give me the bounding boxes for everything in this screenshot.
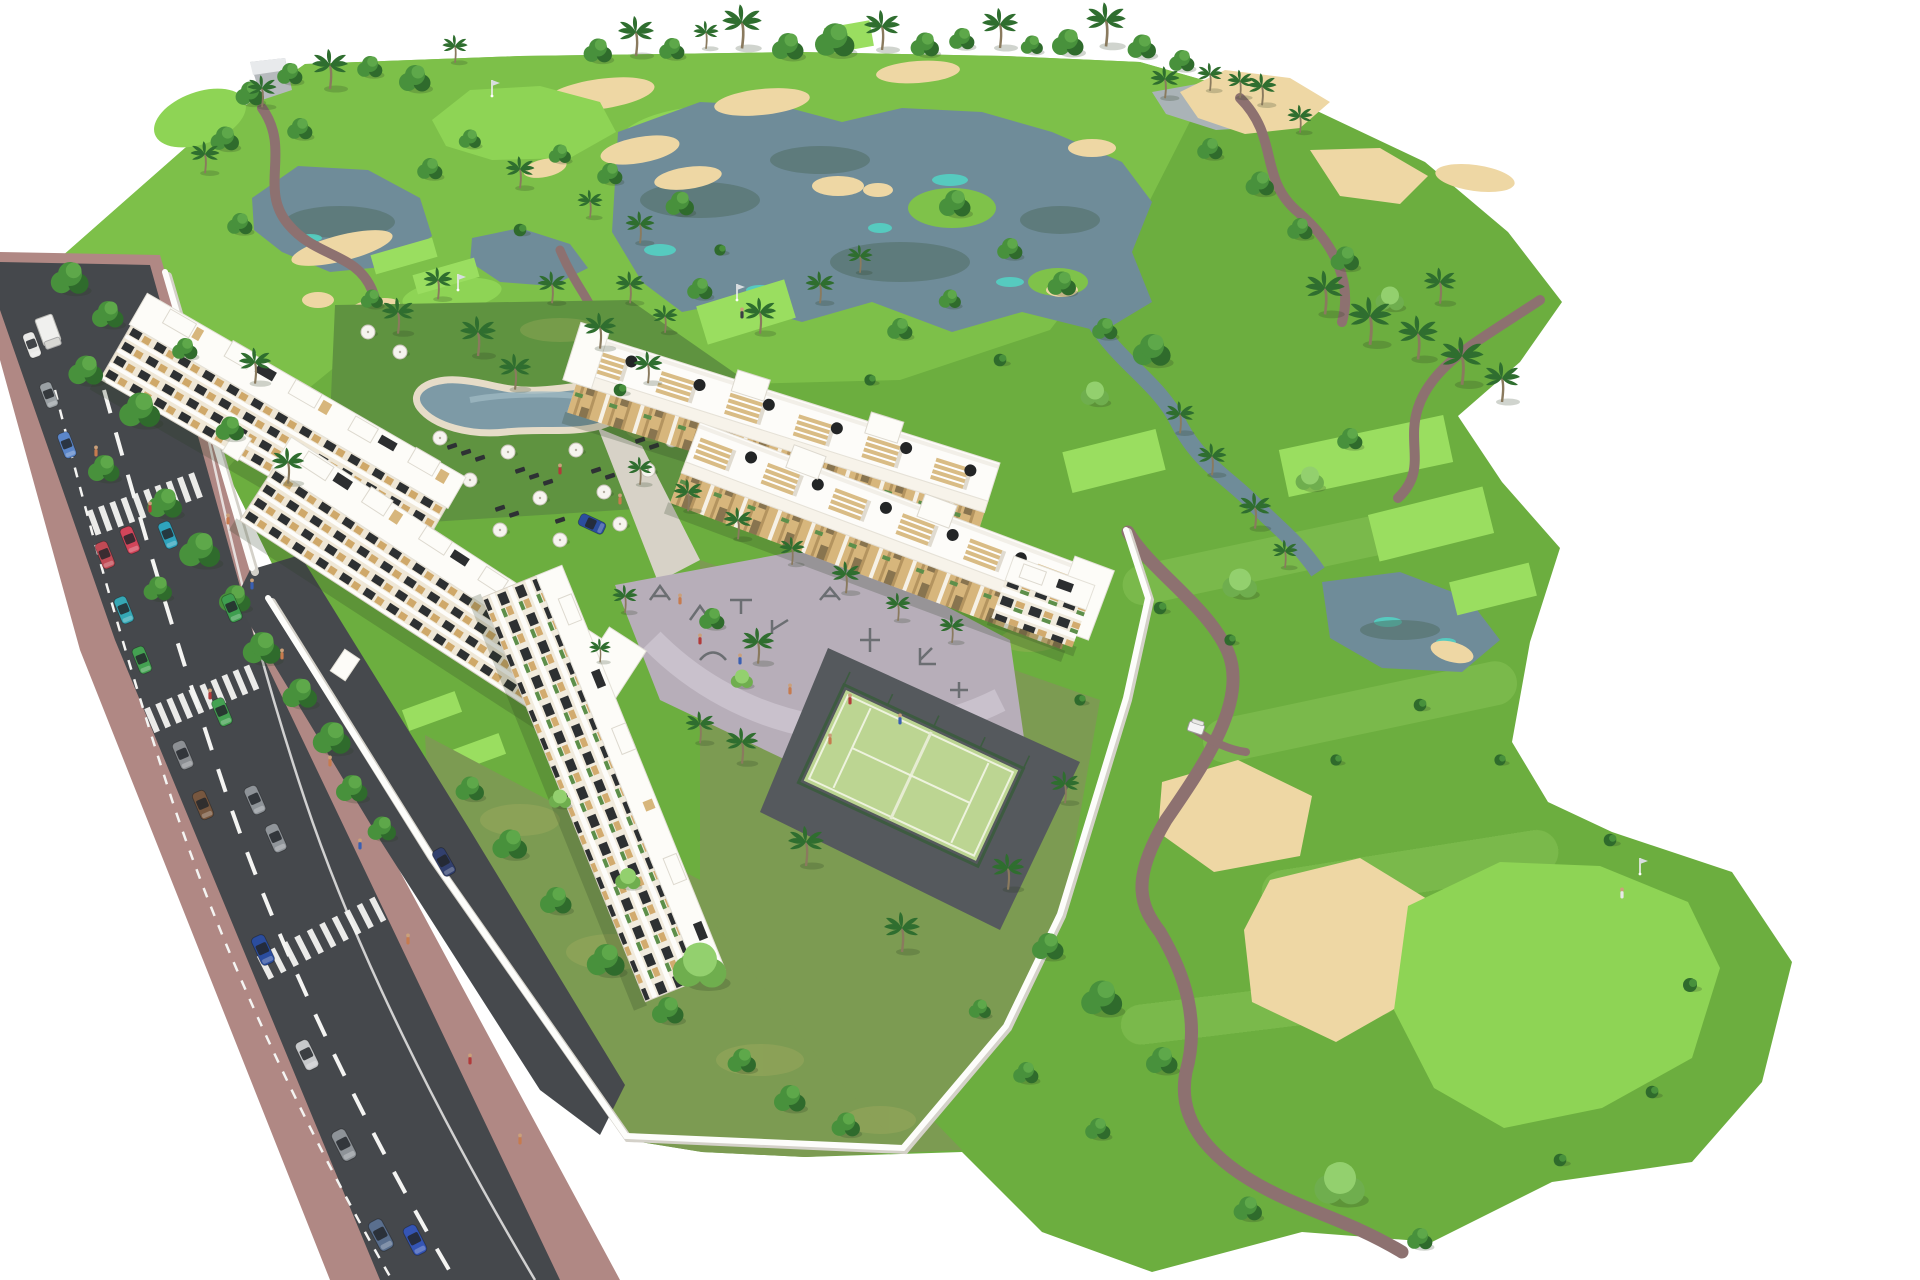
golfer	[740, 308, 744, 319]
golfer	[1620, 888, 1624, 899]
resort-aerial-render	[0, 0, 1920, 1280]
scene-stage	[0, 0, 1920, 1280]
